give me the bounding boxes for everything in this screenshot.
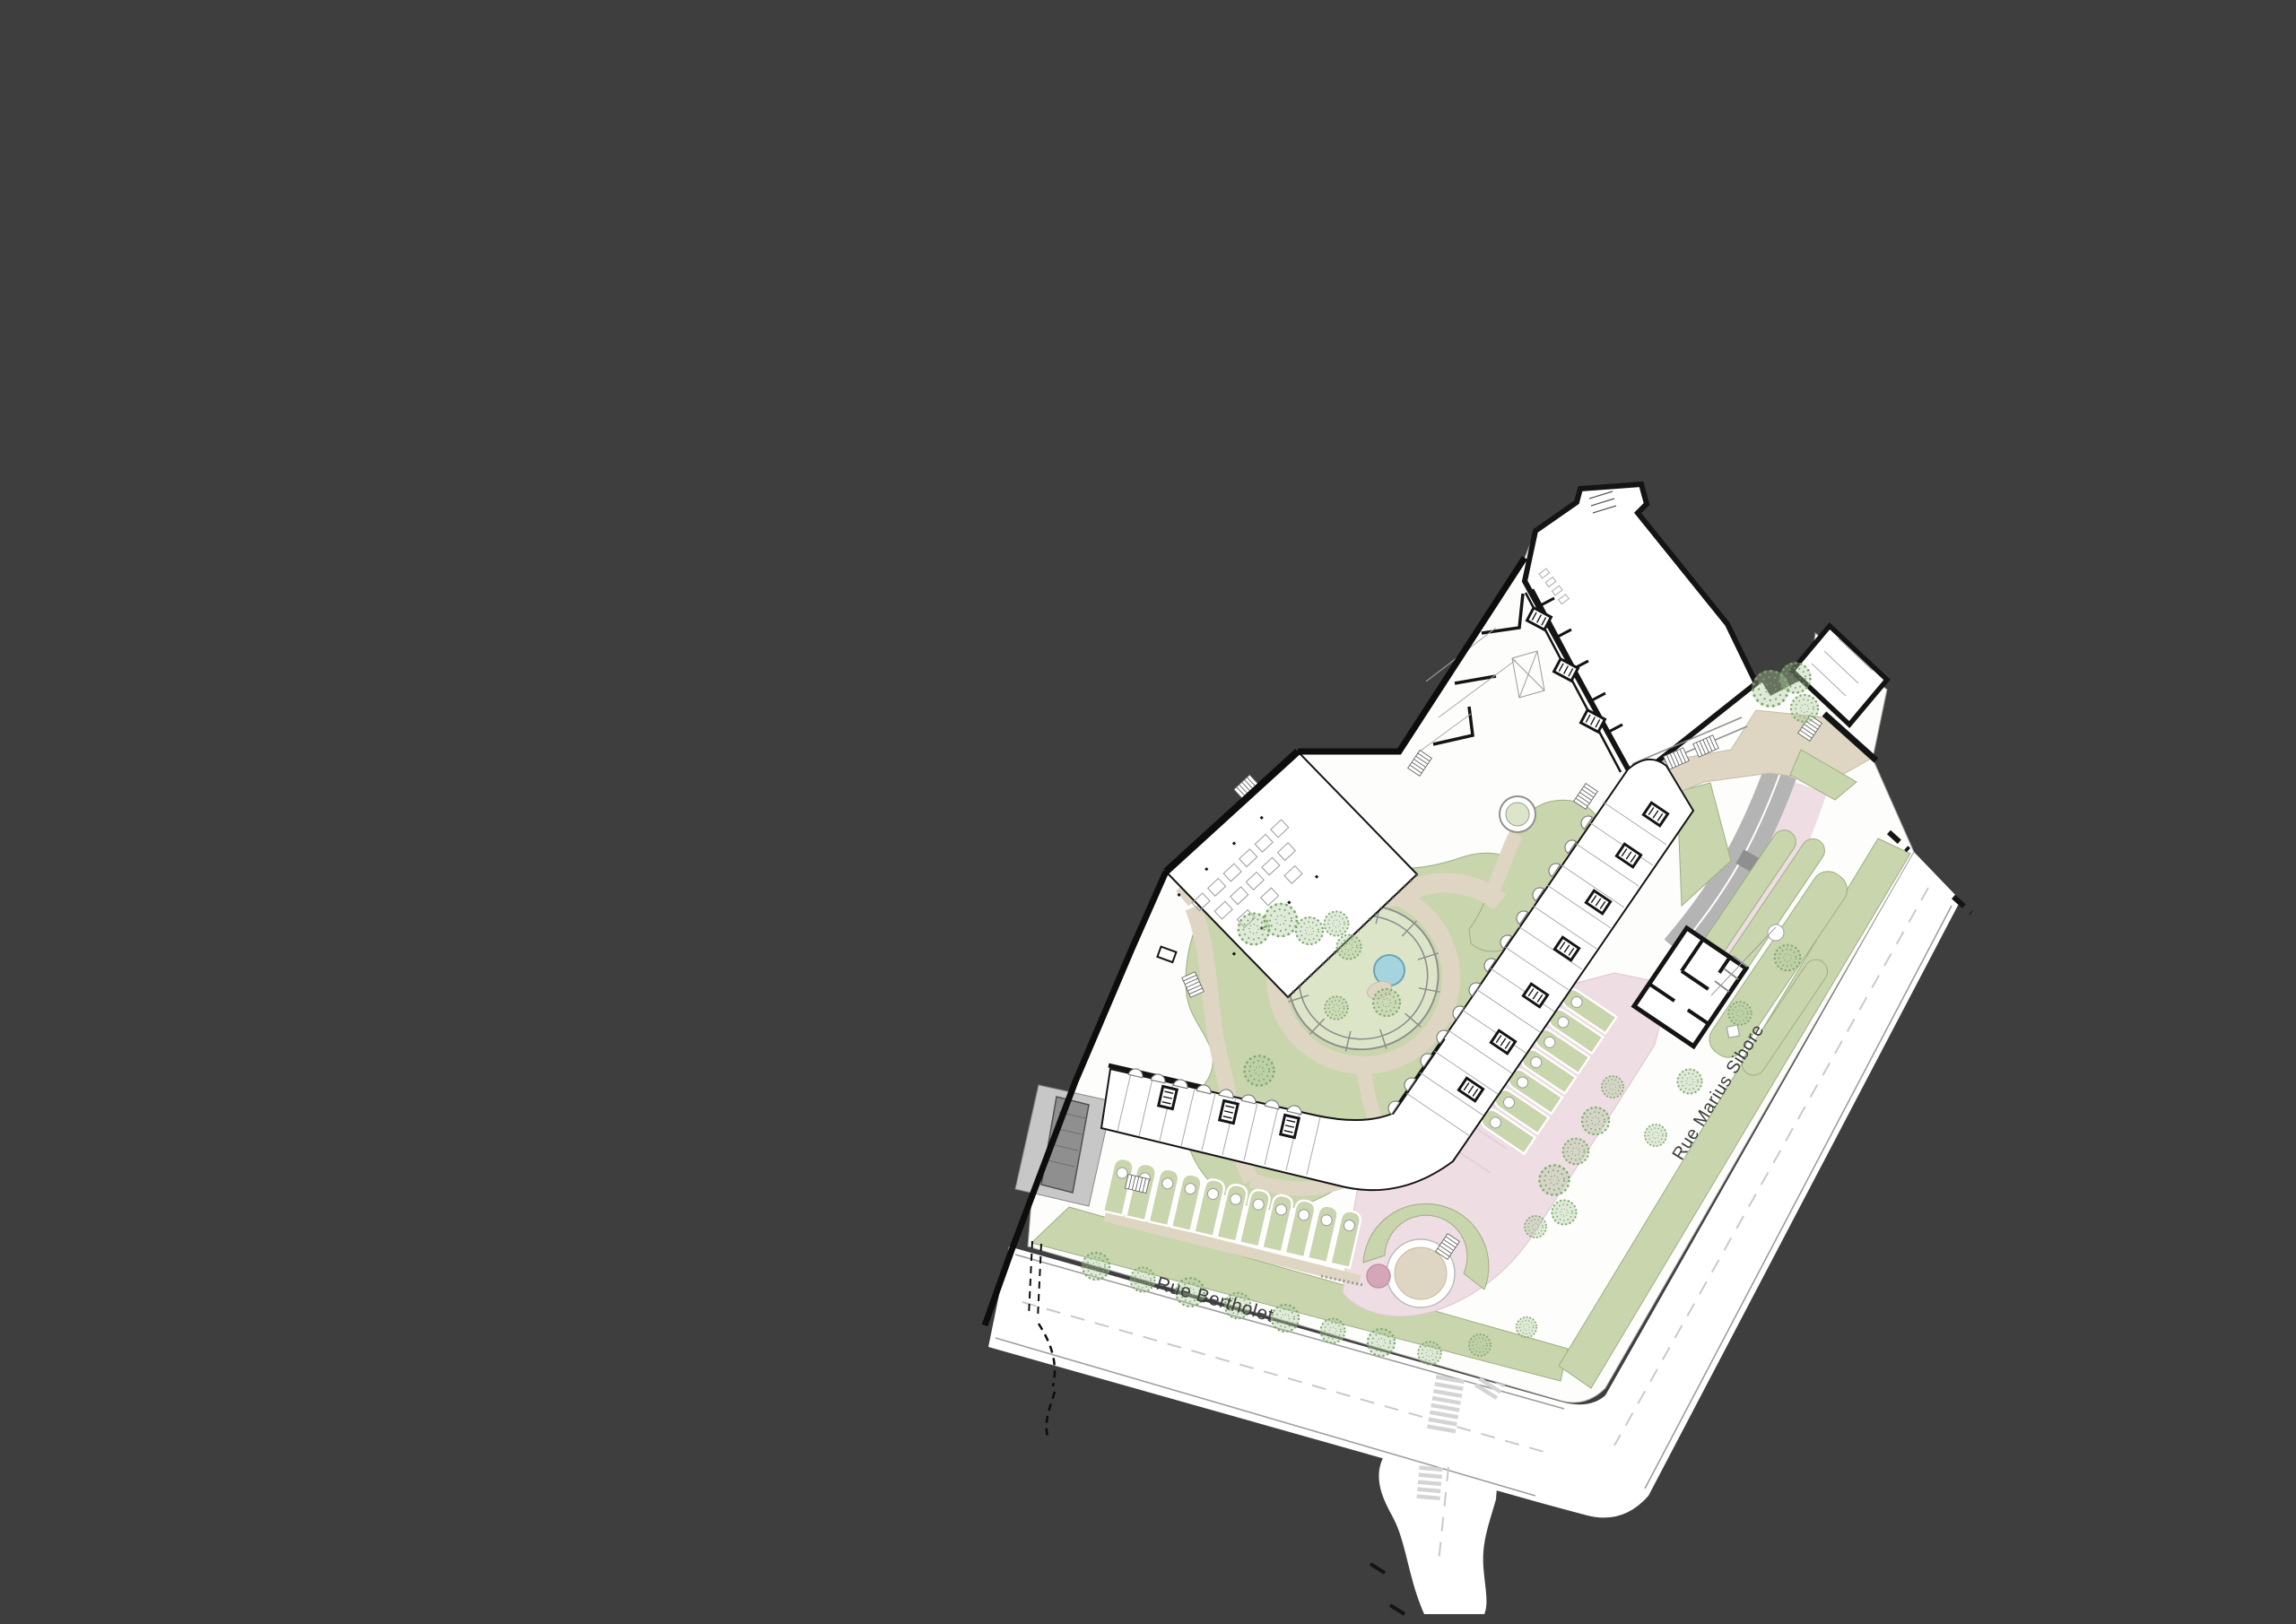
plaza-circle-pink	[1367, 1264, 1390, 1288]
pool	[1374, 955, 1405, 986]
round-garden-feature	[1500, 796, 1535, 832]
site-plan-canvas: Rue Bertholet Rue Marius Sibore	[0, 0, 2296, 1624]
